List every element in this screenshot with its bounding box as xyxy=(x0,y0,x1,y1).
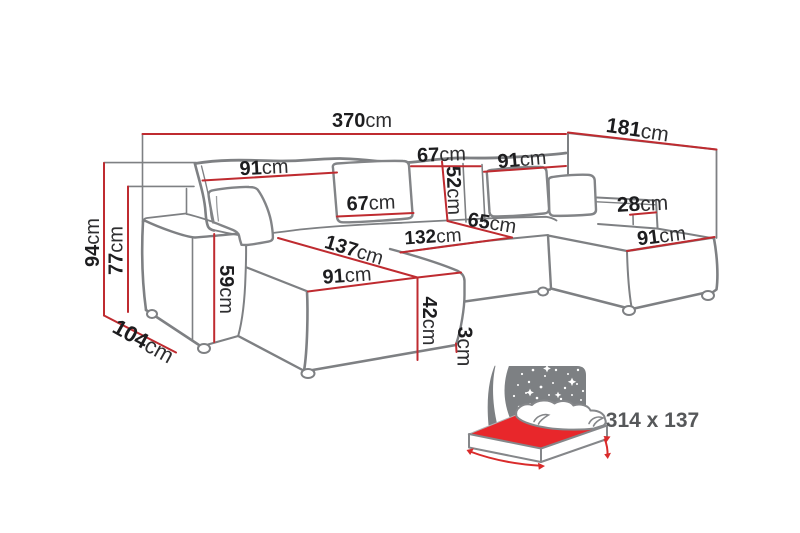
svg-text:67cm: 67cm xyxy=(417,143,467,167)
svg-text:67cm: 67cm xyxy=(346,191,396,215)
svg-text:314 x 137: 314 x 137 xyxy=(606,409,699,432)
svg-text:91cm: 91cm xyxy=(239,156,289,181)
svg-text:91cm: 91cm xyxy=(497,147,548,173)
svg-text:132cm: 132cm xyxy=(404,225,462,250)
svg-text:370cm: 370cm xyxy=(332,110,392,132)
svg-text:94cm: 94cm xyxy=(82,218,104,267)
svg-text:28cm: 28cm xyxy=(616,191,668,217)
svg-text:42cm: 42cm xyxy=(418,297,440,346)
svg-text:77cm: 77cm xyxy=(106,226,128,275)
svg-text:91cm: 91cm xyxy=(322,263,372,288)
svg-text:52cm: 52cm xyxy=(442,166,466,216)
svg-text:59cm: 59cm xyxy=(215,265,237,314)
svg-text:3cm: 3cm xyxy=(453,327,476,367)
